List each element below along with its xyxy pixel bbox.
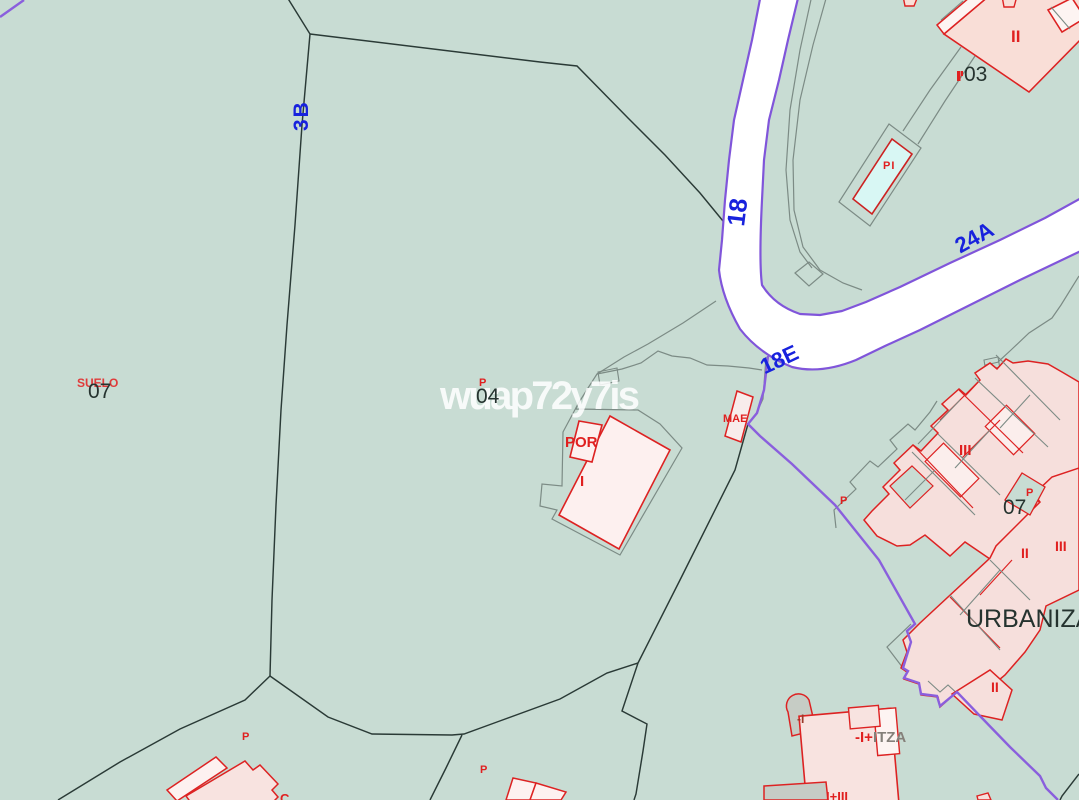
- svg-text:II: II: [991, 679, 999, 695]
- svg-text:04: 04: [476, 385, 500, 408]
- svg-text:18: 18: [722, 197, 753, 228]
- svg-text:07: 07: [88, 380, 111, 403]
- svg-text:P: P: [242, 731, 249, 743]
- svg-text:I+III: I+III: [826, 789, 848, 800]
- svg-text:MAE: MAE: [723, 413, 747, 425]
- svg-text:07: 07: [1003, 496, 1026, 519]
- svg-text:C: C: [280, 791, 290, 800]
- svg-text:POR: POR: [565, 434, 598, 451]
- svg-text:URBANIZA: URBANIZA: [966, 605, 1079, 633]
- svg-text:P: P: [480, 764, 487, 776]
- svg-text:I: I: [580, 473, 584, 490]
- svg-text:II: II: [1011, 27, 1020, 46]
- svg-text:03: 03: [964, 63, 987, 86]
- svg-text:III: III: [959, 442, 972, 459]
- svg-text:P: P: [840, 495, 847, 507]
- svg-text:PI: PI: [883, 160, 895, 172]
- svg-text:3B: 3B: [290, 100, 313, 131]
- svg-text:-I+ITZA: -I+ITZA: [855, 729, 906, 746]
- svg-text:P: P: [1026, 487, 1033, 499]
- svg-text:II: II: [1021, 545, 1029, 561]
- svg-text:III: III: [1055, 538, 1067, 554]
- svg-text:wuap72y7is: wuap72y7is: [439, 374, 640, 418]
- svg-text:-I: -I: [797, 712, 804, 726]
